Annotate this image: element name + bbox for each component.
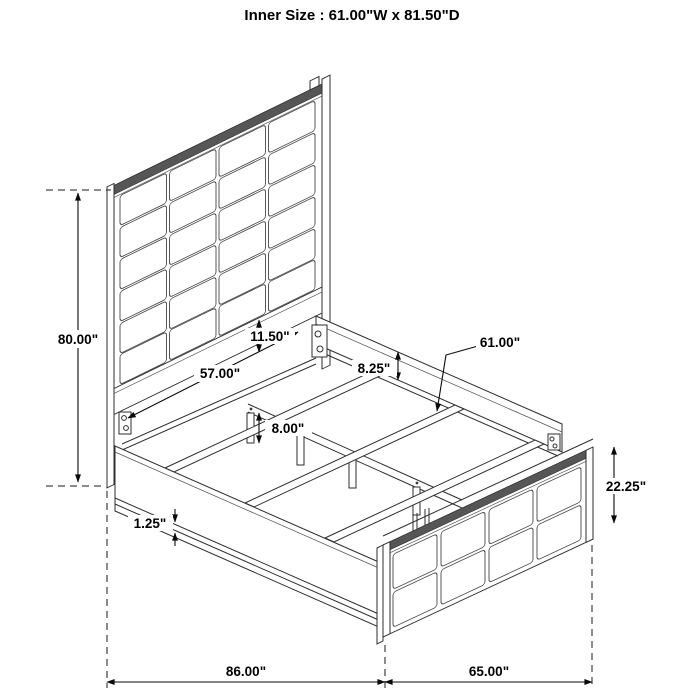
- slat-length-label: 61.00": [480, 335, 520, 350]
- headboard-inner-width-label: 57.00": [200, 366, 240, 381]
- overall-width-label: 65.00": [469, 664, 509, 679]
- right-post-bracket: [312, 325, 327, 357]
- footboard-left-post: [383, 542, 390, 637]
- left-post-bracket: [119, 412, 131, 434]
- headboard-gap-label: 11.50": [250, 329, 289, 344]
- headboard-left-post: [107, 184, 114, 488]
- rail-trim-label: 1.25": [134, 516, 167, 531]
- footboard: [383, 447, 593, 637]
- overall-length-label: 86.00": [226, 664, 266, 679]
- diagram-title: Inner Size : 61.00"W x 81.50"D: [244, 7, 459, 24]
- rail-height-label: 8.25": [358, 361, 391, 376]
- bed-dimension-diagram: 80.00" 57.00" 11.50" 8.25" 61.00" 8.00" …: [0, 0, 700, 700]
- support-leg: [297, 435, 304, 465]
- diagram-canvas: 80.00" 57.00" 11.50" 8.25" 61.00" 8.00" …: [0, 0, 700, 700]
- overall-height-label: 80.00": [58, 332, 98, 347]
- leg-height-label: 8.00": [272, 421, 305, 436]
- far-rail-bracket: [548, 434, 560, 450]
- footboard-left-side: [377, 545, 383, 644]
- footboard-height-label: 22.25": [606, 479, 646, 494]
- footboard-right-post: [586, 447, 593, 542]
